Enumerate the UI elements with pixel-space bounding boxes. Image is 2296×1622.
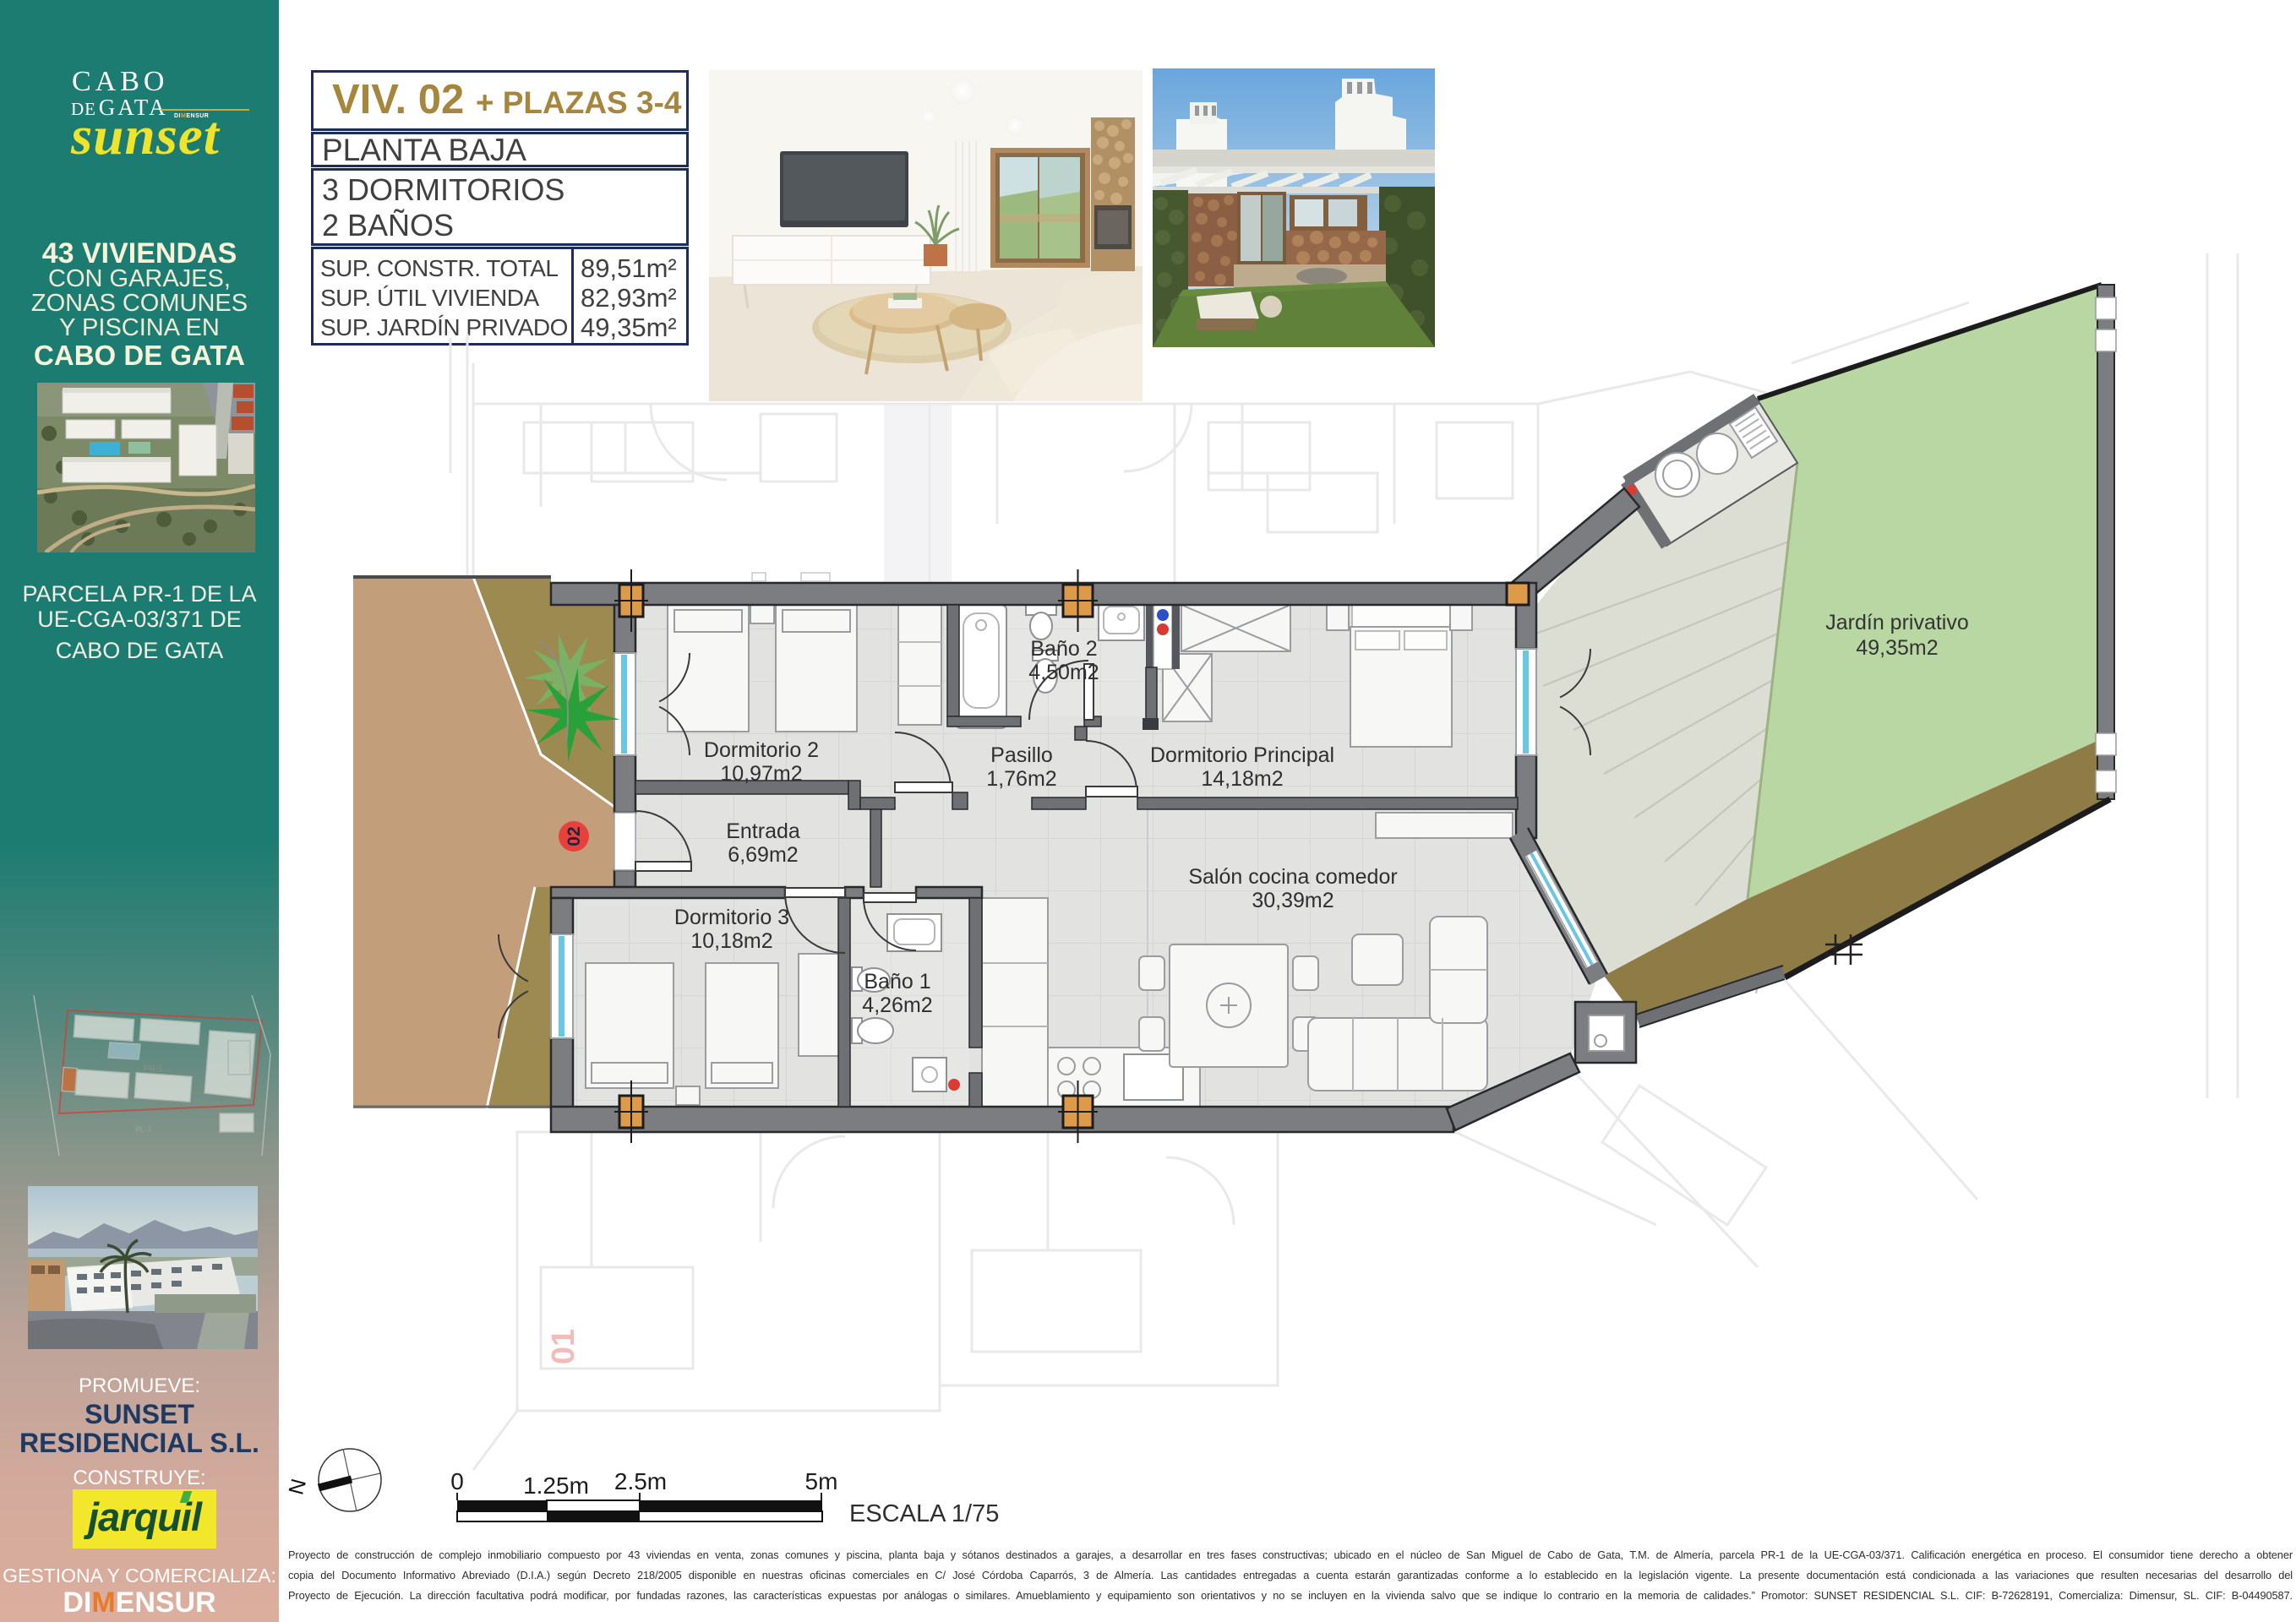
svg-text:Dormitorio 2: Dormitorio 2 xyxy=(704,738,819,762)
svg-text:Baño 1: Baño 1 xyxy=(864,970,930,993)
svg-text:6,69m2: 6,69m2 xyxy=(728,843,798,867)
svg-text:1,76m2: 1,76m2 xyxy=(986,767,1056,791)
svg-text:2.5m: 2.5m xyxy=(614,1468,667,1494)
svg-text:1.25m: 1.25m xyxy=(523,1472,589,1499)
svg-text:Jardín privativo: Jardín privativo xyxy=(1825,611,1969,634)
svg-text:4,26m2: 4,26m2 xyxy=(862,993,932,1017)
svg-text:Dormitorio Principal: Dormitorio Principal xyxy=(1150,743,1334,767)
svg-text:02: 02 xyxy=(564,826,584,846)
svg-text:Salón cocina comedor: Salón cocina comedor xyxy=(1188,865,1397,889)
svg-text:Pasillo: Pasillo xyxy=(990,743,1053,767)
svg-text:10,97m2: 10,97m2 xyxy=(720,762,802,786)
svg-text:N: N xyxy=(284,1477,311,1498)
svg-text:01: 01 xyxy=(546,1329,581,1364)
svg-text:14,18m2: 14,18m2 xyxy=(1201,767,1283,791)
svg-text:10,18m2: 10,18m2 xyxy=(690,929,772,953)
svg-text:4,50m2: 4,50m2 xyxy=(1028,661,1099,684)
svg-text:ESCALA 1/75: ESCALA 1/75 xyxy=(849,1500,999,1527)
svg-text:30,39m2: 30,39m2 xyxy=(1252,889,1333,912)
svg-text:Baño 2: Baño 2 xyxy=(1030,637,1097,661)
svg-text:0: 0 xyxy=(450,1468,464,1494)
svg-text:Entrada: Entrada xyxy=(726,819,800,843)
svg-text:Dormitorio 3: Dormitorio 3 xyxy=(674,906,789,929)
svg-text:5m: 5m xyxy=(805,1468,838,1494)
svg-text:49,35m2: 49,35m2 xyxy=(1856,636,1938,660)
